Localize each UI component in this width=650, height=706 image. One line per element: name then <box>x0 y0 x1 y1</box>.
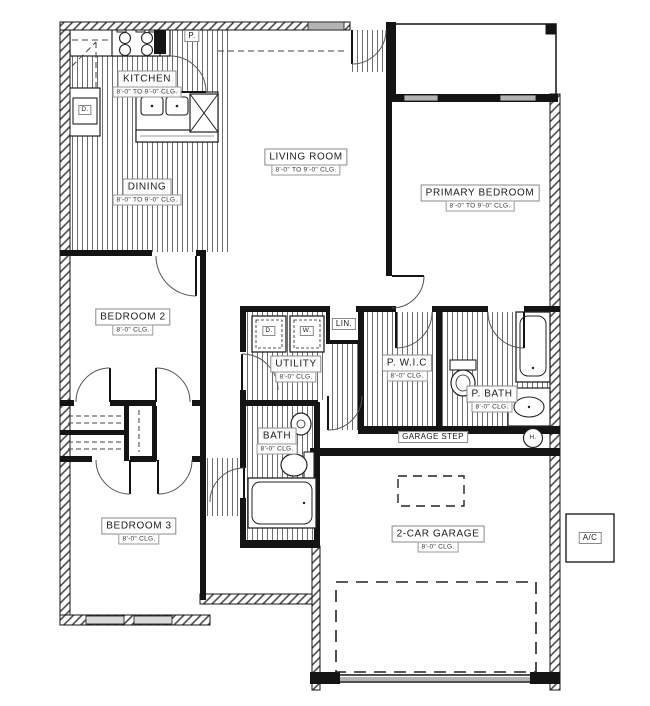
dishwasher-icon <box>190 94 218 132</box>
pantry-label: P. <box>184 30 199 42</box>
garage-step-label: GARAGE STEP <box>398 431 468 443</box>
water-heater-label: H. <box>527 434 538 442</box>
linen-closet-label: LIN. <box>332 318 356 330</box>
dryer-label: D. <box>262 326 275 336</box>
ac-label: A/C <box>579 532 602 544</box>
floorplan-drawing <box>0 0 650 706</box>
washer-label: W. <box>300 326 314 336</box>
kitchen-appliance-label: D. <box>78 105 91 115</box>
floorplan: KITCHEN 8'-0" TO 9'-0" CLG. DINING 8'-0"… <box>0 0 650 706</box>
